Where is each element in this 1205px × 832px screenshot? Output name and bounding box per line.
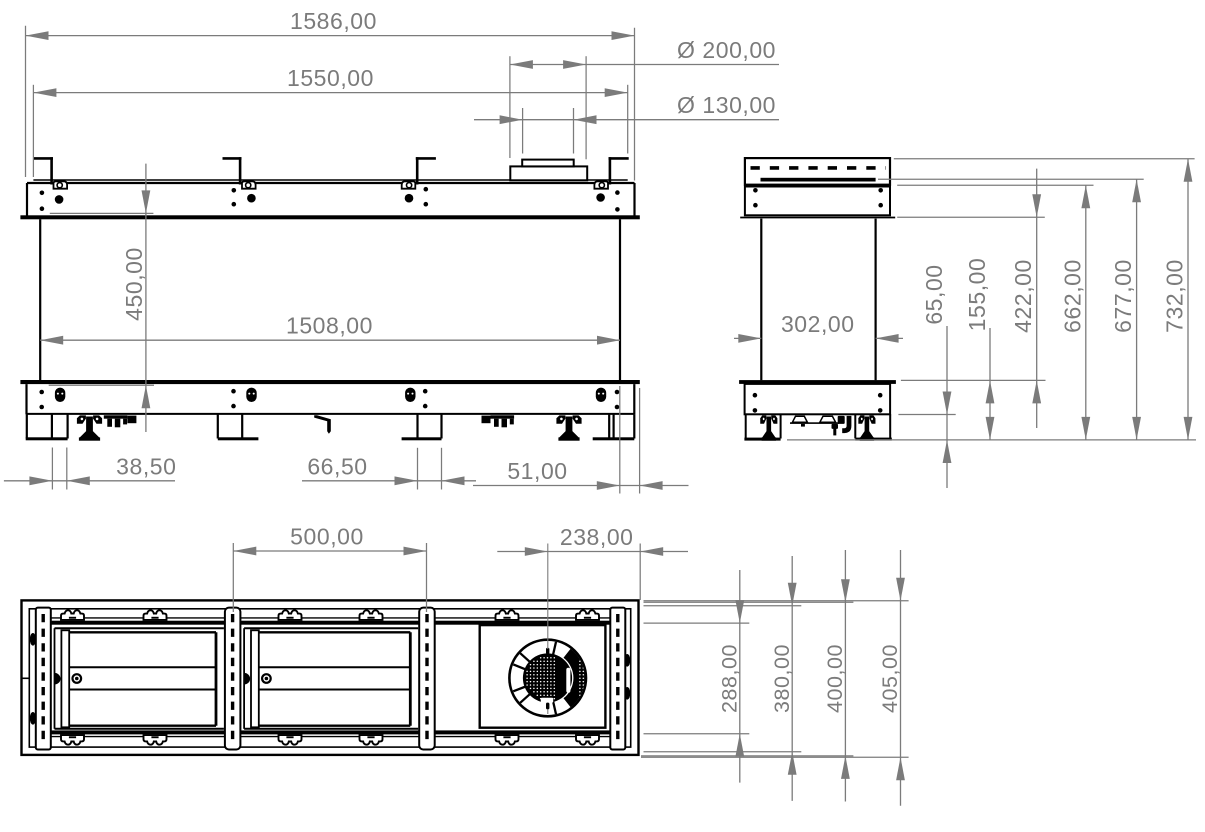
- svg-text:51,00: 51,00: [507, 458, 567, 484]
- svg-text:Ø 130,00: Ø 130,00: [677, 92, 776, 118]
- svg-text:155,00: 155,00: [964, 258, 990, 332]
- svg-text:380,00: 380,00: [770, 644, 794, 713]
- svg-text:1550,00: 1550,00: [287, 65, 374, 91]
- svg-text:500,00: 500,00: [290, 524, 364, 550]
- svg-text:677,00: 677,00: [1110, 259, 1136, 333]
- svg-text:65,00: 65,00: [921, 264, 947, 324]
- svg-text:400,00: 400,00: [823, 644, 847, 713]
- svg-text:288,00: 288,00: [718, 644, 742, 713]
- svg-text:422,00: 422,00: [1010, 259, 1036, 333]
- svg-text:302,00: 302,00: [781, 311, 855, 337]
- svg-text:662,00: 662,00: [1059, 259, 1085, 333]
- svg-text:1586,00: 1586,00: [290, 8, 377, 34]
- svg-text:450,00: 450,00: [121, 247, 147, 321]
- svg-text:238,00: 238,00: [560, 524, 634, 550]
- svg-text:1508,00: 1508,00: [286, 313, 373, 339]
- svg-text:66,50: 66,50: [307, 453, 367, 479]
- svg-text:732,00: 732,00: [1162, 259, 1188, 333]
- svg-text:405,00: 405,00: [878, 644, 902, 713]
- svg-text:Ø 200,00: Ø 200,00: [677, 37, 776, 63]
- svg-text:38,50: 38,50: [116, 453, 176, 479]
